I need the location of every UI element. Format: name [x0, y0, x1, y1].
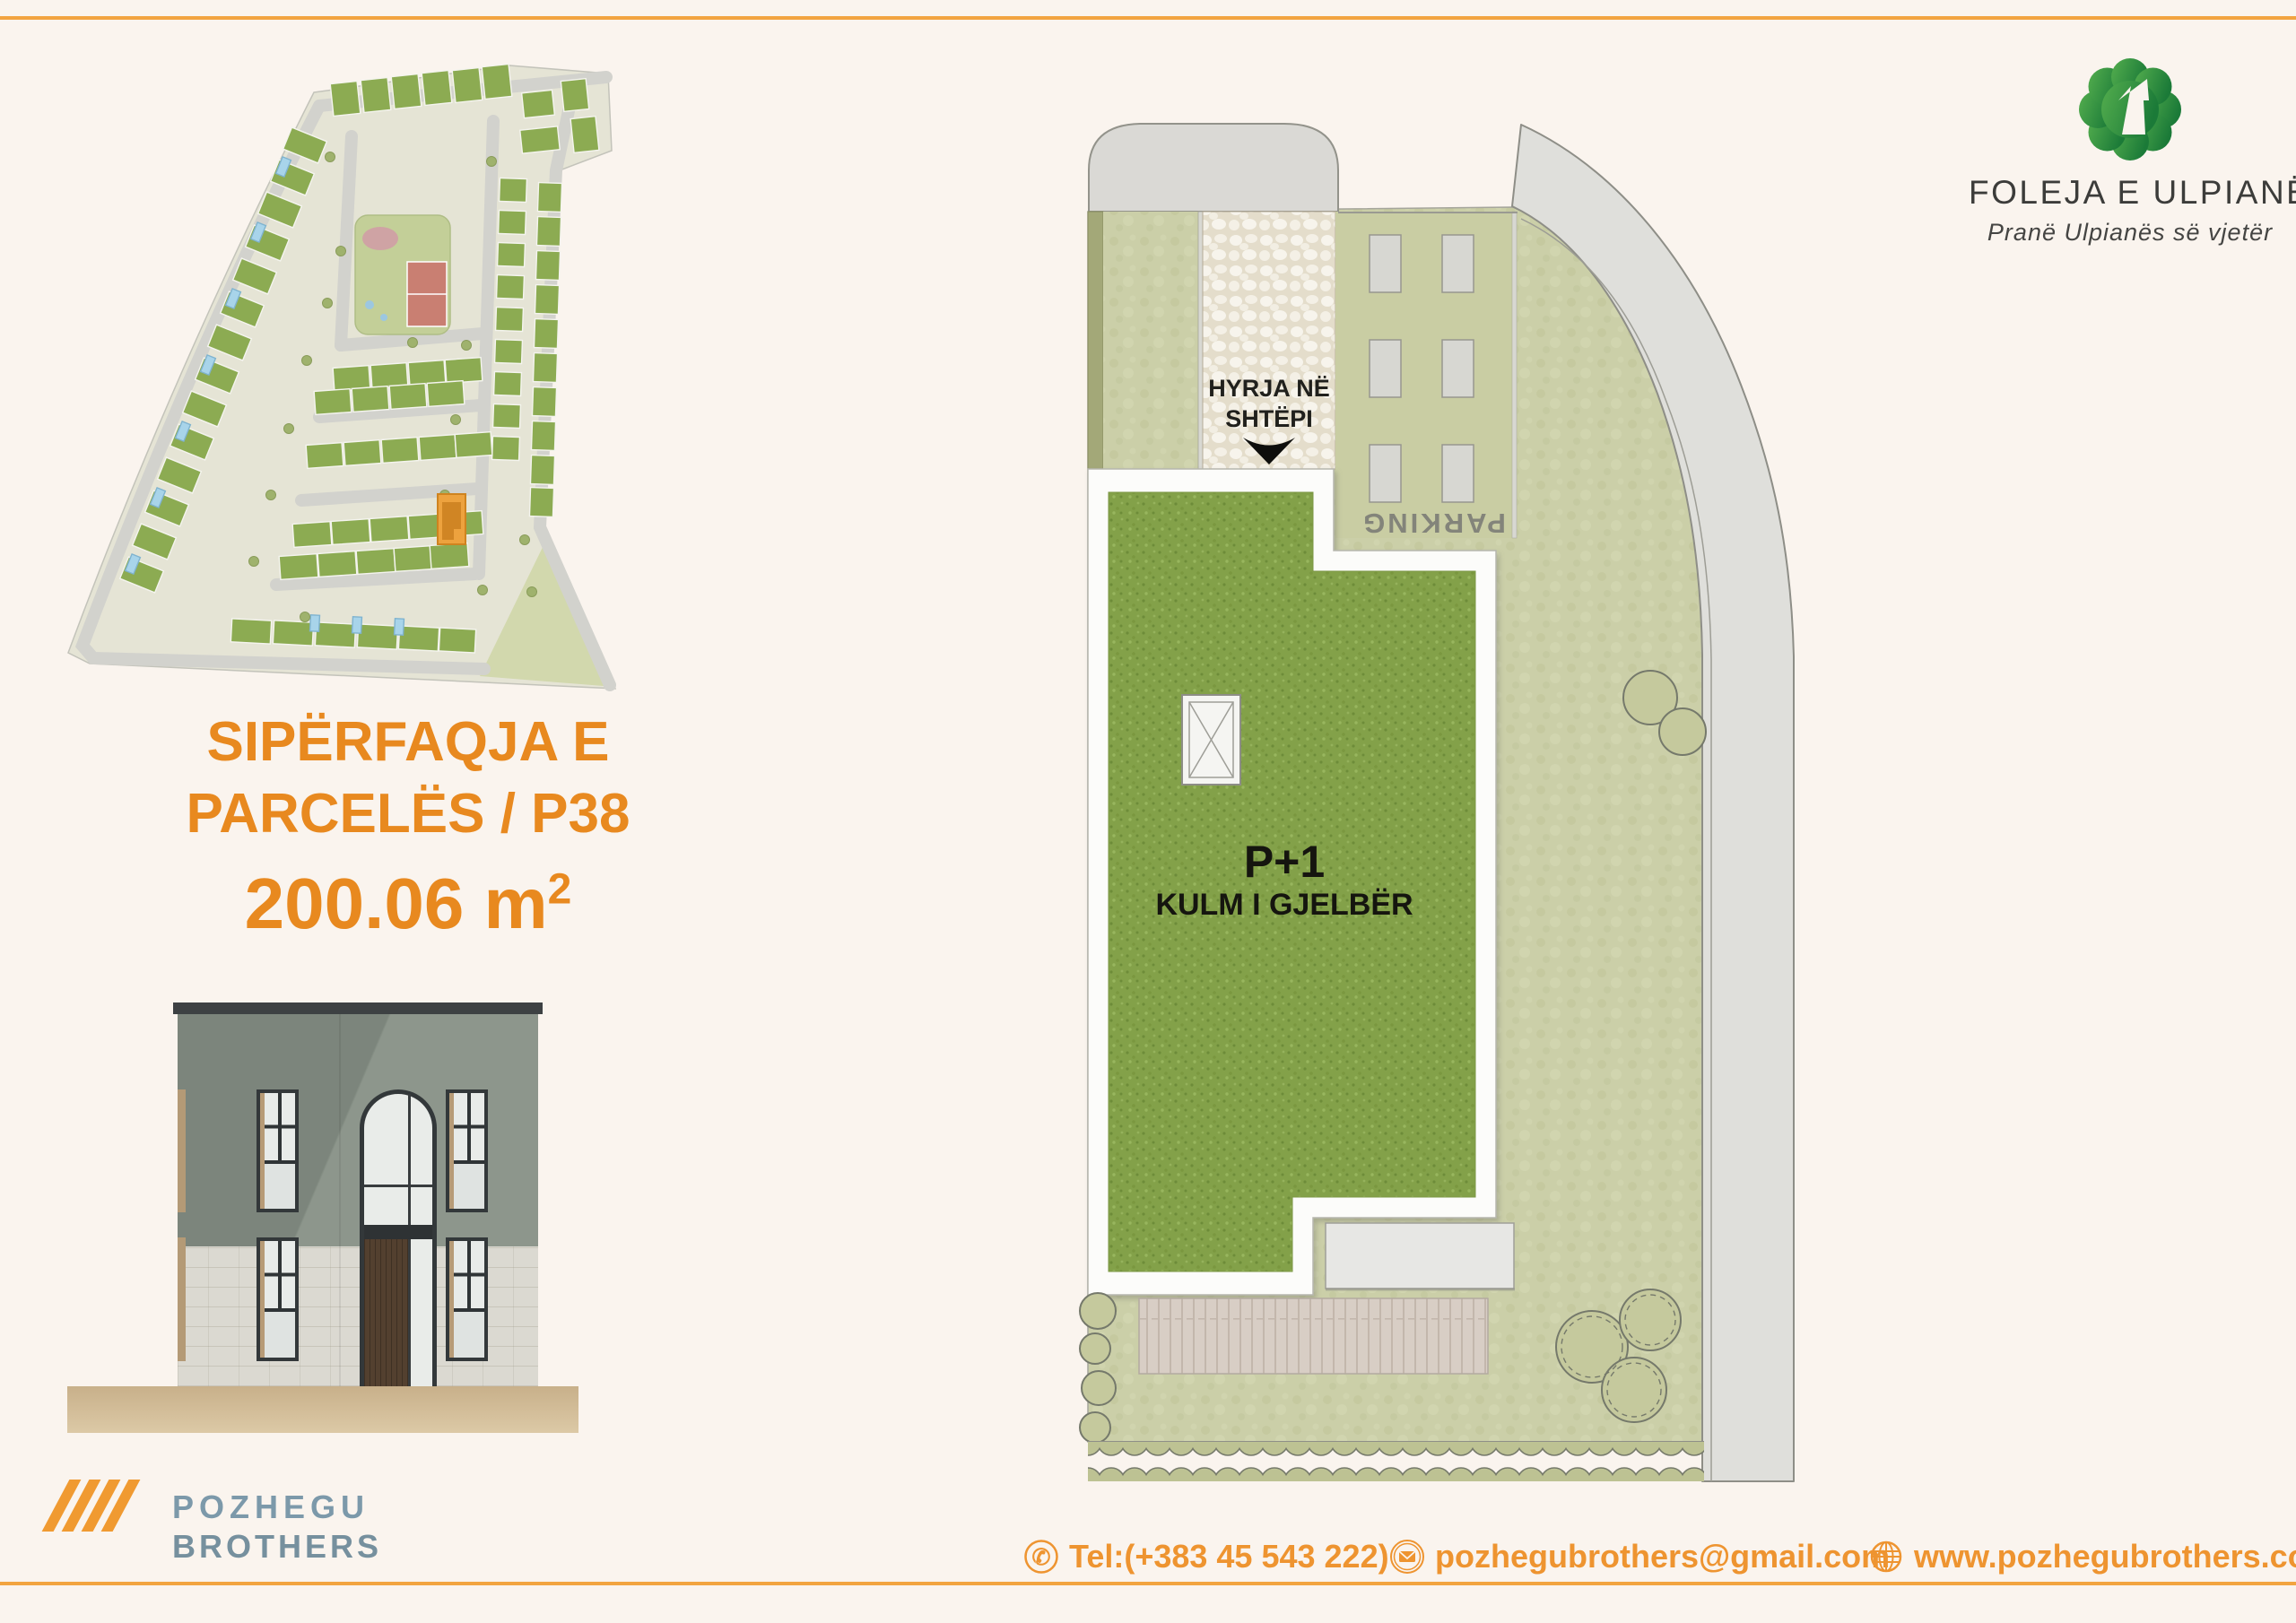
website-url: www.pozhegubrothers.com [1914, 1538, 2296, 1575]
brochure-page: SIPËRFAQJA E PARCELËS / P38 200.06 m2 [0, 0, 2296, 1623]
parking-area [1335, 212, 1516, 538]
left-lawn-strip [1103, 212, 1200, 469]
entrance-label-line2: SHTËPI [1225, 405, 1313, 432]
slashes-icon [43, 1480, 133, 1532]
brand-logo-block: FOLEJA E ULPIANËS Pranë Ulpianës së vjet… [1969, 54, 2292, 247]
parcel-title-line1: SIPËRFAQJA E [112, 707, 704, 778]
front-door [364, 1239, 408, 1386]
phone-icon: ✆ [1022, 1538, 1060, 1575]
skylight-icon [1182, 695, 1240, 785]
brand-tagline: Pranë Ulpianës së vjetër [1969, 219, 2292, 247]
parcel-area-superscript: 2 [548, 865, 572, 913]
brand-name: FOLEJA E ULPIANËS [1969, 174, 2292, 212]
parcel-area-value: 200.06 m [245, 864, 548, 943]
terrace [1326, 1223, 1515, 1289]
email-address: pozhegubrothers@gmail.com [1435, 1538, 1890, 1575]
left-hedge-strip [1088, 212, 1103, 469]
developer-name-line1: POZHEGU [172, 1488, 370, 1526]
highlighted-parcel-p38 [438, 494, 465, 544]
window-lower-right [446, 1237, 488, 1361]
arched-entrance [360, 1089, 437, 1386]
clover-icon [2079, 54, 2182, 161]
phone-number: Tel:(+383 45 543 222) [1069, 1538, 1389, 1575]
side-trim [178, 1237, 186, 1361]
roof-label: P+1 [1244, 837, 1325, 887]
park-area [355, 215, 450, 334]
parcel-area: 200.06 m2 [112, 863, 704, 945]
email-icon [1388, 1538, 1426, 1575]
bottom-hedge [1088, 1442, 1704, 1481]
globe-icon [1867, 1538, 1905, 1575]
wooden-deck [1139, 1298, 1488, 1374]
parking-label: PARKING [1361, 508, 1506, 539]
developer-name-line2: BROTHERS [172, 1528, 382, 1566]
elevation-roof-band [173, 1002, 543, 1014]
contact-website: www.pozhegubrothers.com [1867, 1536, 2296, 1577]
entrance-label-line1: HYRJA NË [1208, 375, 1330, 402]
contact-email: pozhegubrothers@gmail.com [1388, 1536, 1890, 1577]
parcel-plan-drawing: HYRJA NË SHTËPI PARKING P+1 KULM I GJELB… [1076, 81, 1839, 1488]
roof-sublabel: KULM I GJELBËR [1155, 888, 1413, 922]
parcel-title: SIPËRFAQJA E PARCELËS / P38 [112, 707, 704, 850]
window-upper-left [257, 1089, 299, 1212]
parcel-title-line2: PARCELËS / P38 [112, 778, 704, 850]
driveway-entry [1089, 124, 1338, 212]
window-lower-left [257, 1237, 299, 1361]
house-elevation-drawing [178, 1002, 538, 1386]
svg-text:✆: ✆ [1032, 1545, 1051, 1570]
window-upper-right [446, 1089, 488, 1212]
bottom-divider-line [0, 1582, 2296, 1585]
top-divider-line [0, 16, 2296, 20]
side-trim [178, 1089, 186, 1212]
contact-phone: ✆ Tel:(+383 45 543 222) [1022, 1536, 1389, 1577]
ground-strip [67, 1386, 578, 1433]
site-masterplan-map [36, 36, 628, 699]
